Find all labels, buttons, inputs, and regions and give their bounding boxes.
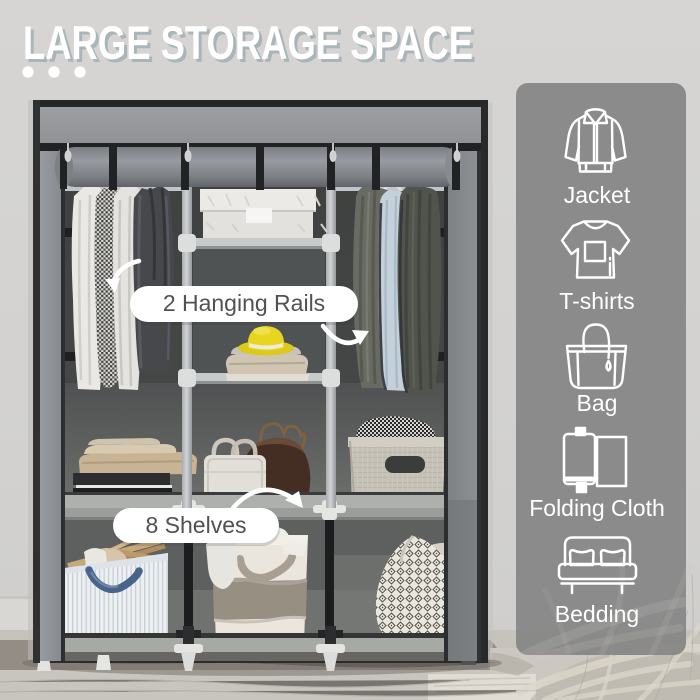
svg-text:LARGE STORAGE SPACE: LARGE STORAGE SPACE <box>23 16 473 69</box>
svg-text:T-shirts: T-shirts <box>559 288 634 314</box>
svg-text:2 Hanging Rails: 2 Hanging Rails <box>163 290 325 316</box>
svg-text:Jacket: Jacket <box>564 182 631 208</box>
svg-text:8 Shelves: 8 Shelves <box>145 512 246 538</box>
svg-text:Bedding: Bedding <box>555 601 639 627</box>
svg-text:Folding Cloth: Folding Cloth <box>529 495 665 521</box>
svg-text:Bag: Bag <box>577 390 618 416</box>
